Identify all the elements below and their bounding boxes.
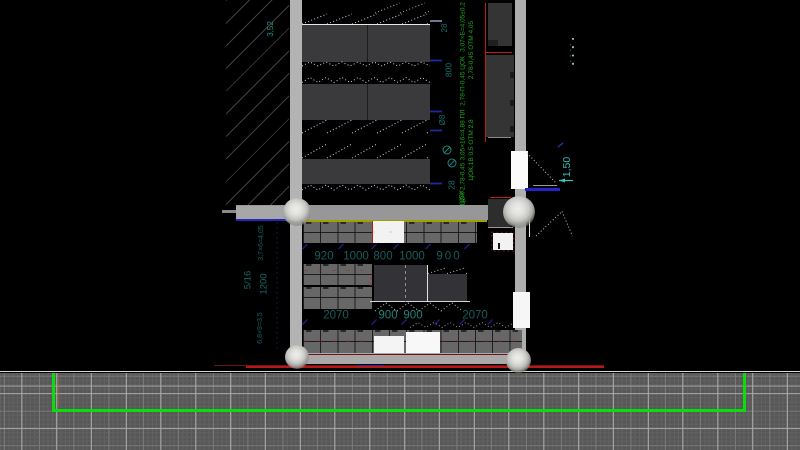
svg-text:900: 900	[436, 251, 461, 263]
svg-text:5/16: 5/16	[243, 271, 254, 290]
svg-text:1200: 1200	[259, 273, 270, 294]
svg-text:28: 28	[446, 180, 456, 190]
svg-text:ЦОК,1В 0,5 ОТМ 2,8: ЦОК,1В 0,5 ОТМ 2,8	[468, 119, 475, 181]
svg-text:6,8×9=3,5: 6,8×9=3,5	[257, 312, 264, 344]
svg-text:3,52: 3,52	[266, 21, 275, 37]
svg-text:1000: 1000	[399, 251, 425, 263]
svg-text:2,78-П-0,45 ЦОК: 2,78-П-0,45 ЦОК	[460, 56, 467, 106]
svg-text:1000: 1000	[343, 251, 369, 263]
svg-text:800: 800	[443, 63, 453, 77]
svg-text:Ø8: Ø8	[438, 114, 447, 125]
svg-text:3,05×16=4,88 ПЛ: 3,05×16=4,88 ПЛ	[460, 110, 467, 161]
svg-text:800: 800	[373, 251, 392, 263]
svg-text:3,07×Б=4,05±0,2: 3,07×Б=4,05±0,2	[460, 2, 467, 52]
svg-text:900: 900	[403, 310, 422, 322]
svg-text:2,78-0,45 ОТМ 4,05: 2,78-0,45 ОТМ 4,05	[468, 21, 475, 80]
svg-text:1,50: 1,50	[561, 157, 573, 178]
svg-text:3,7×6=4,05: 3,7×6=4,05	[258, 225, 265, 261]
svg-text:920: 920	[314, 251, 333, 263]
svg-text:28: 28	[440, 23, 449, 32]
svg-text:2070: 2070	[323, 310, 349, 322]
svg-text:2070: 2070	[462, 310, 488, 322]
svg-text:900: 900	[378, 310, 397, 322]
svg-text:ЦОК: ЦОК	[459, 190, 466, 204]
